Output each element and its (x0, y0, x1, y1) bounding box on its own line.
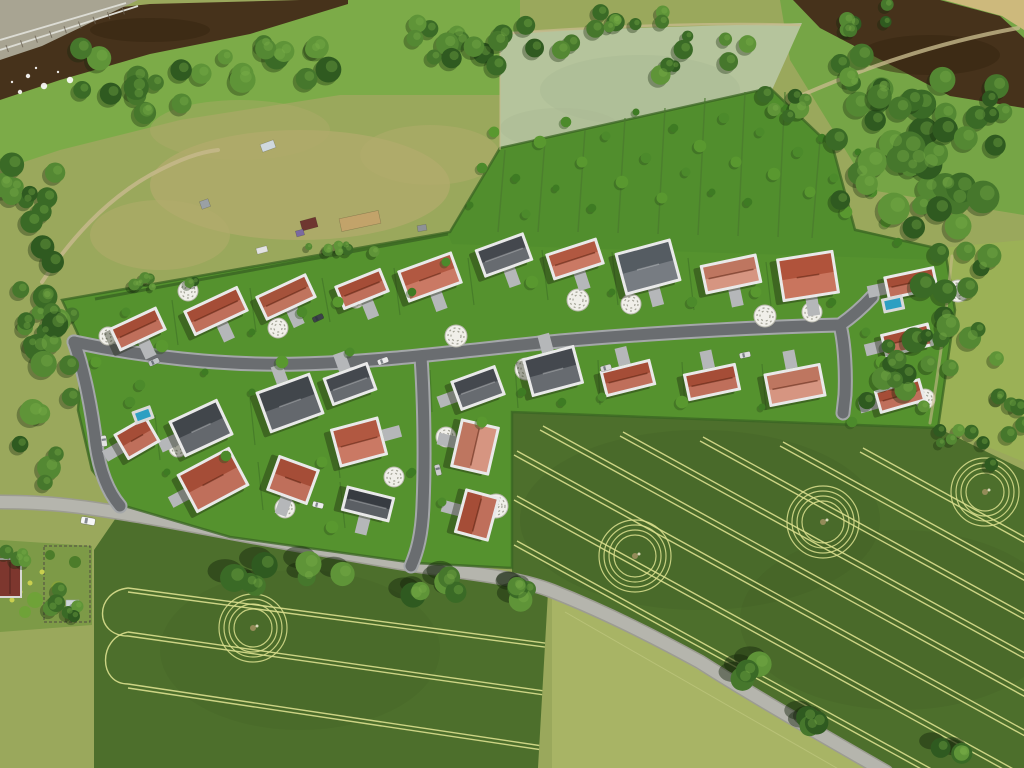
tree-highlight (28, 188, 35, 195)
tree-highlight (673, 62, 678, 67)
allotment-bush (19, 606, 31, 618)
tree (489, 127, 500, 138)
aerial-photo (0, 0, 1024, 768)
tree-highlight (533, 41, 541, 49)
tramline-circle-center (820, 519, 826, 525)
tree-highlight (24, 315, 32, 323)
tree-highlight (834, 131, 844, 141)
tree-highlight (966, 280, 975, 289)
tree-highlight (925, 154, 938, 167)
region-dry-meadow-patch-2 (90, 200, 230, 270)
tree (687, 297, 698, 308)
tree-highlight (903, 382, 913, 392)
tree-highlight (496, 34, 505, 43)
tree (518, 388, 527, 397)
tree-highlight (42, 326, 48, 332)
tree-highlight (745, 663, 755, 673)
tree-highlight (970, 427, 976, 433)
tree (768, 168, 781, 181)
tree (616, 176, 629, 189)
tree-highlight (614, 16, 619, 21)
tree-highlight (180, 96, 189, 105)
tree-highlight (41, 355, 53, 367)
tree-highlight (450, 51, 459, 60)
tree-highlight (864, 176, 874, 186)
tree-highlight (895, 353, 904, 362)
tree-highlight (340, 565, 351, 576)
tree-highlight (887, 341, 893, 347)
tree-highlight (905, 367, 914, 376)
tree (477, 163, 488, 174)
tree-highlight (681, 43, 690, 52)
tree (602, 132, 611, 141)
tree (333, 297, 344, 308)
tree (577, 157, 588, 168)
tree-highlight (71, 310, 77, 316)
tree-highlight (80, 84, 88, 92)
tree-highlight (869, 152, 882, 165)
tramline-circle-center (632, 553, 638, 559)
tree-highlight (50, 336, 59, 345)
tree-highlight (960, 748, 967, 755)
tree-highlight (49, 602, 56, 609)
tree (408, 288, 417, 297)
tree-highlight (419, 585, 427, 593)
tree-highlight (661, 17, 667, 23)
tree-highlight (55, 597, 63, 605)
shed-roof (417, 224, 427, 231)
tree-highlight (988, 93, 995, 100)
tree-highlight (69, 391, 77, 399)
tree (759, 404, 766, 411)
tree (202, 369, 209, 376)
tree-highlight (599, 7, 606, 14)
tree-highlight (886, 0, 892, 6)
allotment-flowers (40, 570, 45, 575)
tree-highlight (67, 358, 76, 367)
tree-highlight (958, 177, 972, 191)
tree-highlight (524, 19, 533, 28)
tree-highlight (891, 197, 905, 211)
tree-highlight (634, 20, 639, 25)
tree-highlight (912, 220, 922, 230)
tree-highlight (937, 200, 948, 211)
tree (522, 210, 531, 219)
tree-highlight (994, 78, 1005, 89)
tree-highlight (975, 109, 986, 120)
tree-highlight (304, 71, 314, 81)
tree (346, 348, 355, 357)
tree-highlight (773, 105, 779, 111)
tree-highlight (659, 68, 668, 77)
tree-highlight (24, 194, 31, 201)
tree-highlight (73, 612, 78, 617)
river-rapids (67, 77, 73, 83)
tree (670, 124, 679, 133)
tree-highlight (885, 18, 890, 23)
allotment-bush (45, 550, 55, 560)
tree-highlight (428, 23, 436, 31)
tree-highlight (24, 556, 30, 562)
tramline-circle-mark (638, 553, 641, 556)
tree-highlight (144, 274, 149, 279)
tree (438, 498, 447, 507)
tree-highlight (865, 395, 873, 403)
tree-highlight (454, 585, 464, 595)
tree-highlight (224, 52, 231, 59)
tree (553, 185, 560, 192)
tree-highlight (305, 571, 313, 579)
tree-highlight (881, 370, 891, 380)
tree (756, 128, 765, 137)
tree-highlight (312, 43, 320, 51)
tree-highlight (1010, 400, 1017, 407)
tree-highlight (933, 145, 944, 156)
tree-highlight (154, 77, 161, 84)
tree-highlight (797, 101, 806, 110)
tree (442, 258, 451, 267)
tree-highlight (940, 439, 944, 443)
tree (830, 174, 839, 183)
tree-highlight (893, 374, 900, 381)
tree (709, 189, 716, 196)
river-deep-water (860, 35, 1000, 75)
tree-highlight (593, 23, 601, 31)
tree-highlight (373, 248, 378, 253)
scene-svg (0, 0, 1024, 768)
tree (526, 276, 539, 289)
river-rapids (11, 81, 13, 83)
tree-highlight (804, 95, 810, 101)
tree (512, 174, 521, 183)
tree-highlight (51, 254, 61, 264)
tree (731, 157, 742, 168)
tree-highlight (338, 249, 342, 253)
tree-highlight (898, 100, 908, 110)
tree-highlight (756, 655, 767, 666)
tree-highlight (764, 89, 772, 97)
tree-highlight (149, 275, 154, 280)
tree-highlight (993, 138, 1002, 147)
tree-highlight (326, 61, 338, 73)
tree-highlight (413, 32, 421, 40)
tree (609, 289, 616, 296)
tree-highlight (10, 188, 19, 197)
tree-highlight (927, 358, 934, 365)
tree (276, 356, 289, 369)
tree-highlight (526, 583, 533, 590)
tree-highlight (1002, 106, 1010, 114)
tree-highlight (416, 17, 424, 25)
tree-highlight (338, 242, 343, 247)
river-rapids (41, 83, 47, 89)
tree-highlight (472, 39, 481, 48)
tree (467, 202, 474, 209)
tree-highlight (262, 556, 274, 568)
tree-highlight (45, 190, 54, 199)
tree-highlight (926, 180, 936, 190)
tree-highlight (19, 284, 27, 292)
tree-highlight (79, 41, 89, 51)
tree-highlight (240, 66, 250, 76)
tree (751, 287, 762, 298)
tree-highlight (727, 55, 735, 63)
tree (588, 204, 597, 213)
tree-highlight (345, 242, 348, 245)
tree-highlight (188, 279, 193, 284)
estate-east-connector (840, 325, 845, 413)
tree-highlight (847, 70, 856, 79)
tree-highlight (3, 176, 11, 184)
tree-highlight (964, 245, 973, 254)
tree-highlight (152, 284, 155, 287)
tree-highlight (518, 592, 529, 603)
tree (558, 398, 567, 407)
tree-highlight (40, 239, 51, 250)
tree-highlight (194, 278, 198, 282)
tramline-circle-center (982, 489, 988, 495)
tree (847, 417, 858, 428)
tramline-circle-center (250, 625, 256, 631)
tree-highlight (18, 438, 25, 445)
tree-highlight (666, 60, 673, 67)
tree (633, 109, 640, 116)
tree-highlight (906, 136, 921, 151)
tree (297, 307, 308, 318)
tree-highlight (559, 43, 567, 51)
tree (221, 451, 232, 462)
tree-highlight (746, 38, 754, 46)
tree-highlight (942, 177, 954, 189)
tree-highlight (943, 121, 954, 132)
tree-highlight (13, 180, 21, 188)
tree (125, 397, 136, 408)
tramline-circle-mark (988, 489, 991, 492)
tree (694, 140, 707, 153)
tree-highlight (987, 247, 998, 258)
tree-highlight (838, 57, 847, 66)
tree-highlight (873, 113, 883, 123)
tree (682, 168, 691, 177)
tree-highlight (913, 150, 926, 163)
tree-highlight (16, 554, 23, 561)
tree-highlight (939, 426, 945, 432)
tree-highlight (922, 402, 927, 407)
river-rapids (18, 90, 22, 94)
tree-highlight (40, 205, 49, 214)
tree-highlight (794, 91, 801, 98)
tree-highlight (29, 338, 36, 345)
tramline-circle-mark (256, 625, 259, 628)
tree-highlight (880, 81, 888, 89)
tree-highlight (943, 106, 953, 116)
tree-highlight (845, 14, 852, 21)
tree-highlight (939, 741, 948, 750)
tree-highlight (199, 67, 208, 76)
tree-highlight (179, 63, 189, 73)
tree (805, 187, 816, 198)
tree-highlight (925, 331, 931, 337)
tree-highlight (1007, 429, 1014, 436)
tree-highlight (39, 407, 48, 416)
tree (477, 417, 488, 428)
tree-highlight (955, 217, 967, 229)
tree-highlight (97, 50, 108, 61)
tree-highlight (282, 44, 291, 53)
river-deep-water (90, 18, 210, 42)
tree (326, 521, 339, 534)
tree-highlight (494, 58, 503, 67)
river-rapids (57, 71, 59, 73)
tree-highlight (133, 280, 138, 285)
tree (641, 153, 652, 164)
tree-highlight (445, 36, 455, 46)
car (101, 435, 108, 447)
tree-highlight (920, 199, 929, 208)
tree-highlight (109, 86, 119, 96)
tree-highlight (982, 438, 988, 444)
car-body (101, 435, 108, 447)
tree-highlight (995, 353, 1002, 360)
tree-highlight (687, 32, 692, 37)
tree-highlight (990, 460, 996, 466)
tree-highlight (248, 576, 257, 585)
tree-highlight (980, 186, 995, 201)
tree-highlight (327, 245, 331, 249)
tree-highlight (805, 709, 815, 719)
allotment-bush (27, 592, 43, 608)
shed (417, 224, 427, 231)
tree (534, 136, 547, 149)
tree-highlight (937, 246, 946, 255)
tree-highlight (54, 449, 61, 456)
tree-highlight (134, 79, 145, 90)
tree-highlight (139, 279, 143, 283)
tree-highlight (977, 324, 984, 331)
tree-highlight (957, 426, 963, 432)
tree-highlight (21, 550, 26, 555)
allotment-flowers (10, 598, 15, 603)
tree-highlight (346, 245, 351, 250)
tree-highlight (308, 244, 311, 247)
tree-highlight (849, 25, 855, 31)
tree-highlight (997, 391, 1004, 398)
tree-highlight (58, 585, 65, 592)
tree-highlight (53, 166, 62, 175)
river-rapids (26, 74, 30, 78)
tree-highlight (661, 8, 667, 14)
tree (122, 308, 131, 317)
tree-highlight (838, 193, 847, 202)
tree-highlight (942, 309, 951, 318)
tree (91, 357, 102, 368)
tree (561, 117, 572, 128)
tree-highlight (814, 715, 825, 726)
tree (862, 328, 871, 337)
tree-highlight (940, 71, 952, 83)
tree-highlight (968, 330, 978, 340)
river-rapids (35, 67, 37, 69)
tree-highlight (979, 262, 987, 270)
tree-highlight (939, 332, 947, 340)
tree-highlight (50, 306, 58, 314)
tree-highlight (608, 23, 613, 28)
tree-highlight (963, 130, 974, 141)
tree-highlight (515, 580, 523, 588)
tree-highlight (9, 156, 20, 167)
tree (744, 198, 753, 207)
tree-highlight (859, 47, 870, 58)
tree (249, 329, 256, 336)
allotment-bush (69, 556, 81, 568)
tree (828, 298, 837, 307)
tree (719, 113, 730, 124)
tree (135, 380, 146, 391)
tree-highlight (43, 477, 50, 484)
tree (598, 393, 607, 402)
tree-highlight (37, 307, 44, 314)
tree-highlight (447, 570, 457, 580)
tree-highlight (989, 109, 996, 116)
tree (317, 457, 328, 468)
tree-highlight (950, 435, 955, 440)
tree-highlight (877, 88, 888, 99)
tree-highlight (889, 359, 896, 366)
tree (156, 340, 169, 353)
tree-highlight (231, 568, 244, 581)
tree-highlight (942, 283, 953, 294)
tree (249, 389, 256, 396)
tree-highlight (47, 459, 58, 470)
tree (657, 193, 668, 204)
tree (164, 469, 171, 476)
tree-highlight (949, 362, 957, 370)
tree-highlight (953, 190, 966, 203)
tree-highlight (35, 338, 47, 350)
tree-highlight (67, 608, 73, 614)
region-dry-meadow-patch-3 (360, 125, 500, 185)
tree (793, 147, 804, 158)
tree-highlight (76, 602, 81, 607)
tree-highlight (135, 69, 145, 79)
tree-highlight (920, 276, 932, 288)
tree-highlight (890, 134, 902, 146)
tree-highlight (433, 52, 440, 59)
tree (408, 468, 417, 477)
tree-highlight (570, 37, 578, 45)
tree-highlight (264, 42, 273, 51)
tree-highlight (857, 165, 867, 175)
tree-highlight (24, 322, 31, 329)
tree-highlight (29, 214, 39, 224)
allotment-flowers (28, 581, 33, 586)
tramline-circle-mark (826, 519, 829, 522)
tree-highlight (852, 18, 859, 25)
tree-highlight (787, 111, 793, 117)
tree-highlight (44, 291, 51, 298)
tree-highlight (306, 555, 318, 567)
tree-highlight (724, 35, 730, 41)
tree-highlight (52, 315, 64, 327)
tree-highlight (910, 92, 920, 102)
tree-highlight (5, 547, 11, 553)
tree-highlight (897, 150, 909, 162)
tree (676, 396, 689, 409)
tree (894, 238, 903, 247)
tree-highlight (145, 105, 151, 111)
tree-highlight (946, 317, 957, 328)
